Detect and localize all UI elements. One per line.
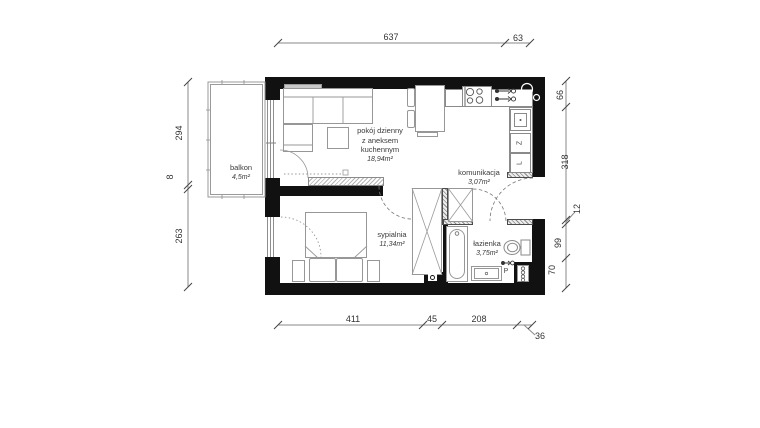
dim-left-8: 8 bbox=[165, 162, 175, 192]
dim-left-294: 294 bbox=[174, 113, 184, 153]
dim-left-263: 263 bbox=[174, 216, 184, 256]
dim-right-318: 318 bbox=[560, 142, 570, 182]
room-name-line: pokój dzienny bbox=[338, 126, 422, 136]
dim-bottom-45: 45 bbox=[421, 314, 443, 324]
window-bedroom bbox=[268, 217, 274, 257]
dim-bottom-411: 411 bbox=[333, 314, 373, 324]
sink-drain bbox=[520, 119, 522, 121]
curtain-end-box bbox=[343, 170, 348, 175]
room-label-bathroom: łazienka 3,75m² bbox=[455, 239, 519, 258]
plan-linework bbox=[0, 0, 760, 428]
closet-x bbox=[448, 188, 473, 222]
room-label-living: pokój dzienny z aneksem kuchennym 18,94m… bbox=[338, 126, 422, 164]
dim-right-12: 12 bbox=[572, 194, 582, 224]
bedroom-shaft-icon bbox=[428, 274, 437, 281]
kitchen-tap-icons bbox=[495, 89, 515, 102]
room-label-balcony: balkon 4,5m² bbox=[210, 163, 272, 182]
dim-top-637: 637 bbox=[371, 32, 411, 42]
dishwasher-label: Z bbox=[516, 133, 526, 154]
corner-sink-icon bbox=[522, 84, 540, 101]
washbasin-drain bbox=[485, 272, 487, 274]
room-area: 3,75m² bbox=[455, 249, 519, 259]
room-name-line: z aneksem bbox=[338, 136, 422, 146]
room-label-bedroom: sypialnia 11,34m² bbox=[360, 230, 424, 249]
room-label-hall: komunikacja 3,07m² bbox=[436, 168, 522, 187]
dim-bottom-36: 36 bbox=[530, 331, 550, 341]
dimension-lines bbox=[188, 43, 574, 335]
dim-top-63: 63 bbox=[506, 33, 530, 43]
dim-bottom-208: 208 bbox=[464, 314, 494, 324]
room-area: 11,34m² bbox=[360, 240, 424, 250]
room-area: 18,94m² bbox=[338, 155, 422, 165]
bedroom-curtain-arc bbox=[281, 217, 321, 257]
bed-folds bbox=[305, 246, 367, 258]
washer-label: P bbox=[500, 267, 512, 276]
washer-tap-icon bbox=[502, 261, 515, 265]
room-name-line: sypialnia bbox=[360, 230, 424, 240]
dim-right-66: 66 bbox=[555, 75, 565, 115]
stove-burners bbox=[465, 87, 483, 106]
room-name-line: komunikacja bbox=[436, 168, 522, 178]
room-name-line: łazienka bbox=[455, 239, 519, 249]
room-name-line: balkon bbox=[210, 163, 272, 173]
fridge-label: L bbox=[516, 153, 526, 174]
floor-plan: 637 63 411 45 208 36 294 8 263 66 318 12… bbox=[0, 0, 760, 428]
dim-right-70: 70 bbox=[547, 250, 557, 290]
bedroom-door-arc bbox=[379, 186, 412, 219]
bathtub-faucet bbox=[455, 232, 459, 236]
shaft-pipes bbox=[521, 267, 524, 282]
room-area: 3,07m² bbox=[436, 178, 522, 188]
room-area: 4,5m² bbox=[210, 173, 272, 183]
bathroom-door-arc bbox=[473, 189, 506, 222]
room-name-line: kuchennym bbox=[338, 145, 422, 155]
